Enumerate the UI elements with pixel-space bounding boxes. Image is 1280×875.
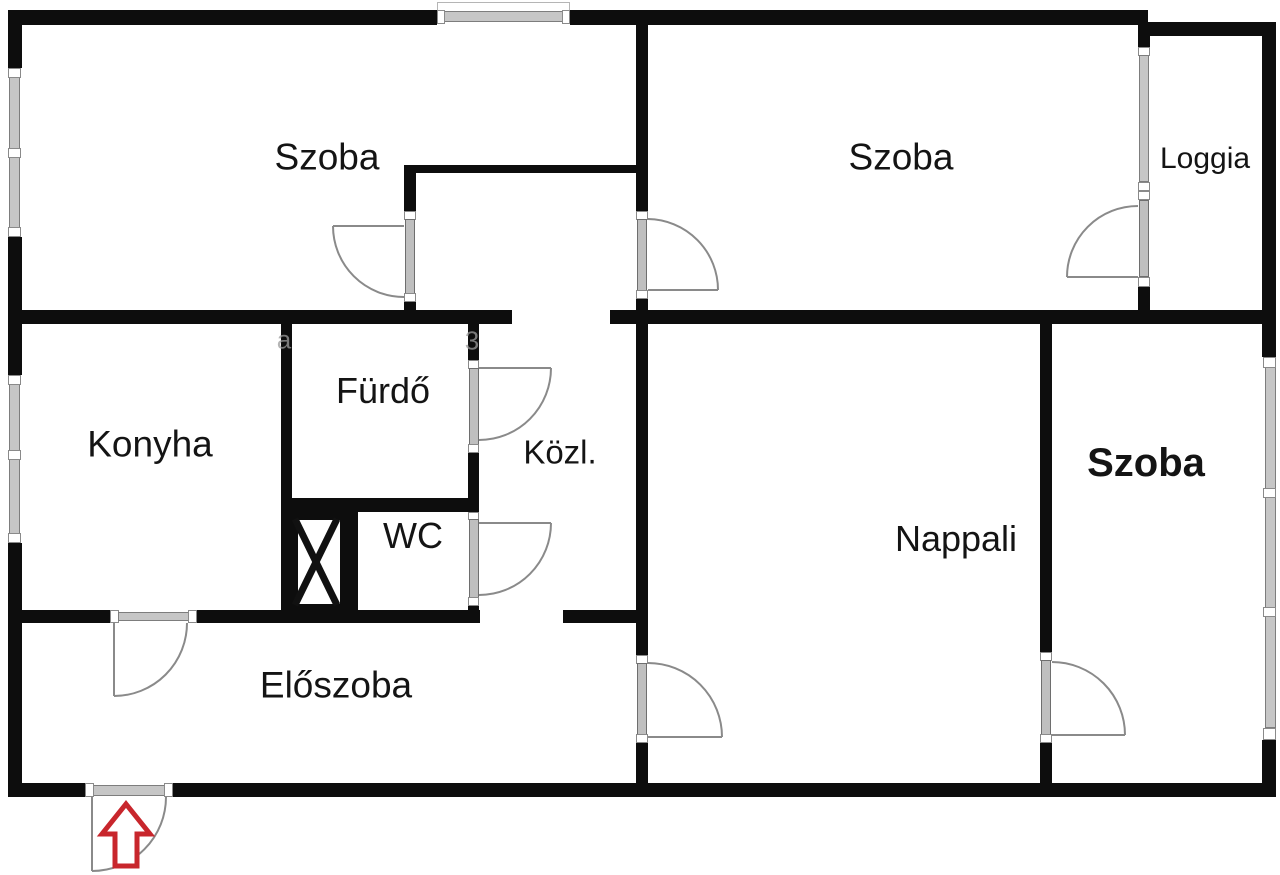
door-arc-szoba-top-right	[648, 219, 718, 290]
watermark-fragment: a	[277, 325, 291, 356]
room-label-kozl: Közl.	[523, 436, 596, 469]
door-arc-szoba-bottom-right	[1052, 662, 1125, 735]
room-label-furdo: Fürdő	[336, 373, 430, 409]
room-label-konyha: Konyha	[87, 426, 213, 463]
door-arc-szoba-top-left	[333, 226, 404, 297]
room-label-eloszoba: Előszoba	[260, 667, 412, 704]
door-arc-furdo	[479, 368, 551, 440]
watermark-fragment: 3	[465, 326, 479, 357]
floor-plan: Szoba Szoba Loggia Konyha Fürdő Közl. WC…	[0, 0, 1280, 875]
room-label-loggia: Loggia	[1160, 144, 1250, 174]
door-arc-konyha	[114, 623, 187, 696]
entrance-arrow-icon	[102, 804, 150, 866]
room-label-nappali: Nappali	[895, 521, 1017, 557]
door-arc-loggia	[1067, 206, 1138, 277]
room-label-szoba-top-right: Szoba	[849, 139, 954, 176]
door-arc-wc	[479, 523, 551, 595]
room-label-szoba-top-left: Szoba	[275, 139, 380, 176]
room-label-szoba-bottom-right: Szoba	[1087, 443, 1205, 483]
door-arc-nappali	[648, 663, 722, 737]
room-label-wc: WC	[383, 518, 443, 554]
